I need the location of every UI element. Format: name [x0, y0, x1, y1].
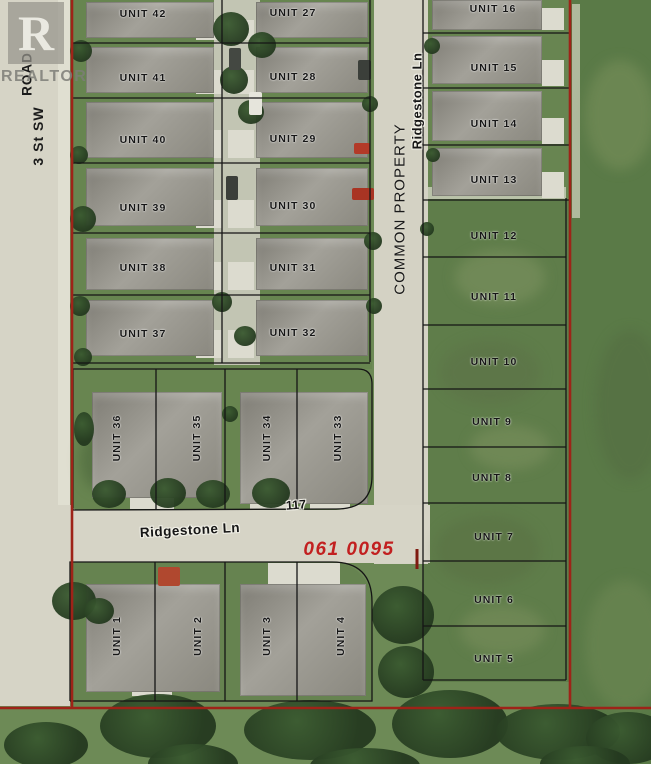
realtor-logo-letter: R: [18, 8, 54, 58]
tree: [420, 222, 434, 236]
red-shed: [158, 567, 180, 586]
unit-label-unit-40: UNIT 40: [120, 134, 167, 146]
red-car: [354, 143, 370, 154]
unit-label-unit-3: UNIT 3: [261, 616, 273, 656]
tree: [70, 146, 88, 164]
ground-texture-blob: [460, 605, 545, 655]
realtor-text-watermark: REALTOR: [1, 68, 87, 86]
unit-label-unit-29: UNIT 29: [270, 133, 317, 145]
unit-label-unit-15: UNIT 15: [471, 62, 518, 74]
tree: [196, 480, 230, 508]
house-roof: [432, 148, 542, 196]
unit-label-unit-35: UNIT 35: [191, 415, 203, 462]
driveway-pad: [542, 60, 564, 86]
tree: [150, 478, 186, 508]
tree: [426, 148, 440, 162]
tree: [70, 296, 90, 316]
unit-label-unit-8: UNIT 8: [472, 472, 512, 484]
ground-texture-blob: [435, 515, 540, 585]
street-3-st-sw-label: 3 St SW: [30, 106, 46, 165]
tree: [362, 96, 378, 112]
red-car: [352, 188, 374, 200]
house-roof: [432, 36, 542, 84]
tree: [84, 598, 114, 624]
house-roof: [86, 47, 214, 93]
unit-label-unit-5: UNIT 5: [474, 653, 514, 665]
house-roof: [256, 47, 368, 93]
unit-label-unit-39: UNIT 39: [120, 202, 167, 214]
tree: [424, 38, 440, 54]
dark-car: [229, 48, 241, 70]
tree: [392, 690, 508, 758]
unit-label-unit-14: UNIT 14: [471, 118, 518, 130]
unit-label-unit-42: UNIT 42: [120, 8, 167, 20]
white-car: [249, 92, 262, 115]
house-roof: [86, 168, 214, 226]
parcel-number-label: 061 0095: [303, 539, 394, 561]
tree: [74, 348, 92, 366]
ground-texture-blob: [585, 60, 651, 170]
realtor-logo-watermark: R: [8, 2, 64, 64]
tree: [364, 232, 382, 250]
dark-car: [226, 176, 238, 200]
tree: [378, 646, 434, 698]
house-roof: [240, 584, 366, 696]
unit-label-unit-2: UNIT 2: [192, 616, 204, 656]
aerial-parcel-map: UNIT 42UNIT 41UNIT 40UNIT 39UNIT 38UNIT …: [0, 0, 651, 764]
ground-texture-blob: [470, 425, 550, 470]
tree: [212, 292, 232, 312]
tree: [70, 206, 96, 232]
unit-label-unit-12: UNIT 12: [471, 230, 518, 242]
unit-label-unit-1: UNIT 1: [111, 616, 123, 656]
tree: [366, 298, 382, 314]
ground-texture-blob: [440, 340, 540, 405]
unit-label-unit-7: UNIT 7: [474, 531, 514, 543]
tree: [220, 66, 248, 94]
driveway-pad: [542, 8, 564, 30]
tree: [372, 586, 434, 644]
tree: [248, 32, 276, 58]
driveway-pad: [542, 118, 564, 144]
unit-label-unit-32: UNIT 32: [270, 327, 317, 339]
tree: [92, 480, 126, 508]
shoulder-east: [572, 4, 580, 218]
ridgestone-ln-vertical-label: Ridgestone Ln: [410, 53, 425, 150]
tree: [234, 326, 256, 346]
house-roof: [256, 102, 368, 158]
unit-label-unit-28: UNIT 28: [270, 71, 317, 83]
tree: [74, 412, 94, 446]
unit-label-unit-30: UNIT 30: [270, 200, 317, 212]
unit-label-unit-36: UNIT 36: [111, 415, 123, 462]
common-property-label: COMMON PROPERTY: [392, 123, 409, 294]
house-number-117-label: 117: [285, 497, 306, 512]
unit-label-unit-9: UNIT 9: [472, 416, 512, 428]
unit-label-unit-10: UNIT 10: [471, 356, 518, 368]
unit-label-unit-4: UNIT 4: [335, 616, 347, 656]
dark-car: [358, 60, 371, 80]
unit-label-unit-11: UNIT 11: [471, 291, 517, 303]
unit-label-unit-31: UNIT 31: [270, 262, 317, 274]
driveway-pad: [228, 130, 254, 158]
driveway-pad: [228, 200, 254, 228]
driveway-pad: [228, 262, 254, 290]
unit-label-unit-41: UNIT 41: [120, 72, 167, 84]
unit-label-unit-37: UNIT 37: [120, 328, 167, 340]
tree: [252, 478, 290, 508]
house-roof: [86, 102, 214, 158]
tree: [213, 12, 249, 46]
unit-label-unit-13: UNIT 13: [471, 174, 518, 186]
unit-label-unit-27: UNIT 27: [270, 7, 317, 19]
unit-label-unit-6: UNIT 6: [474, 594, 514, 606]
unit-label-unit-38: UNIT 38: [120, 262, 167, 274]
unit-label-unit-33: UNIT 33: [332, 415, 344, 462]
house-roof: [432, 91, 542, 141]
unit-label-unit-16: UNIT 16: [470, 3, 517, 15]
tree: [4, 722, 88, 764]
tree: [222, 406, 238, 422]
tree: [70, 40, 92, 62]
unit-label-unit-34: UNIT 34: [261, 415, 273, 462]
driveway-pad: [542, 172, 564, 198]
